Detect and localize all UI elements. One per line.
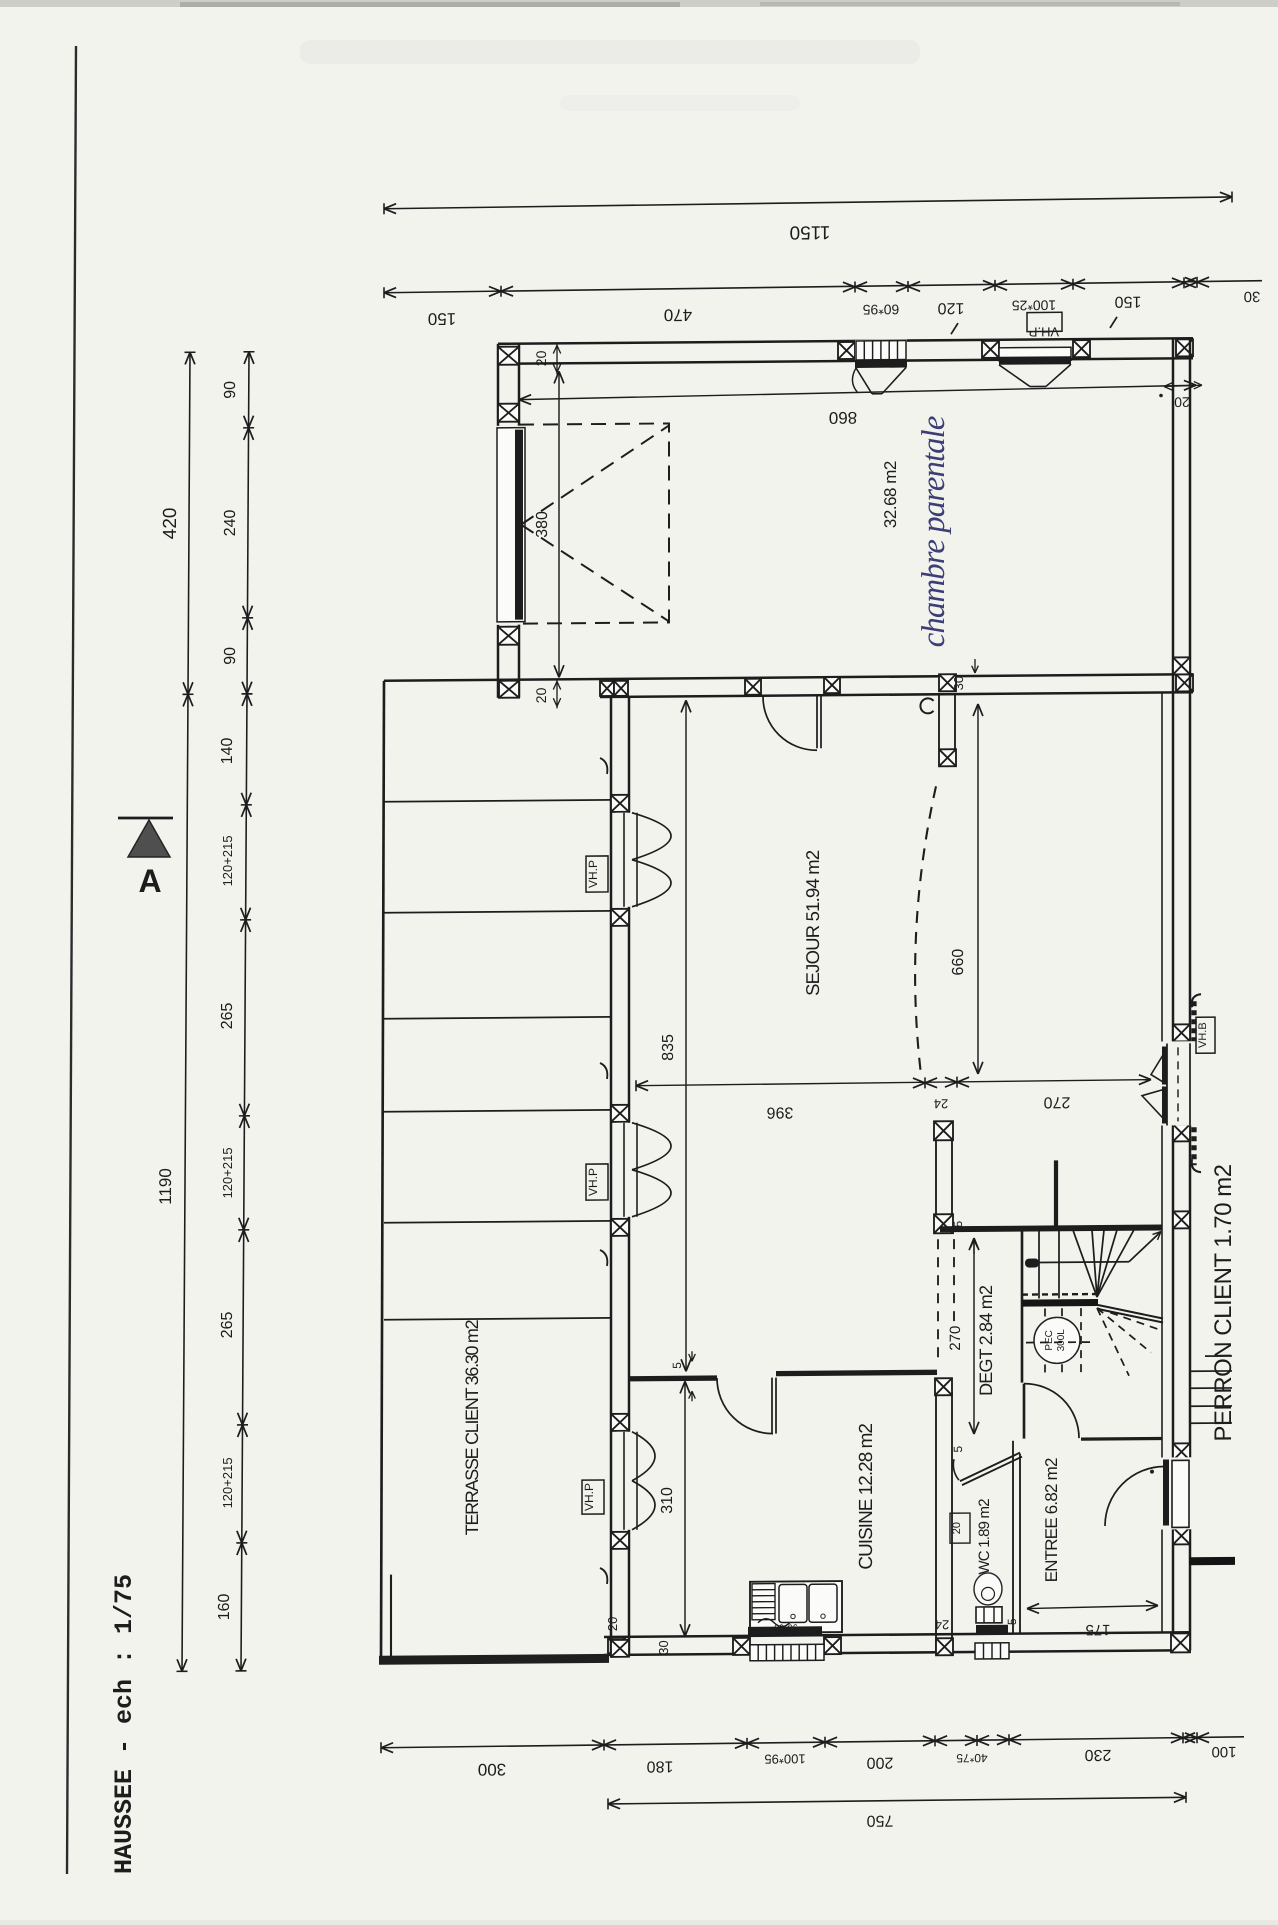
svg-text:VH.P: VH.P	[586, 1168, 600, 1196]
svg-text:265: 265	[219, 1002, 236, 1029]
svg-text:40*75: 40*75	[956, 1751, 988, 1765]
svg-text:660: 660	[950, 949, 967, 976]
svg-text:30: 30	[951, 676, 966, 691]
svg-text:20: 20	[533, 687, 549, 703]
svg-text:PERRON CLIENT 1.70 m2: PERRON CLIENT 1.70 m2	[1210, 1164, 1237, 1442]
svg-text:120+215: 120+215	[220, 1457, 235, 1508]
svg-text:90: 90	[222, 381, 239, 399]
svg-text:chambre parentale: chambre parentale	[916, 416, 952, 647]
svg-text:470: 470	[664, 305, 692, 324]
svg-text:270: 270	[947, 1326, 964, 1351]
svg-text:860: 860	[829, 408, 857, 427]
svg-text:20: 20	[605, 1617, 620, 1632]
svg-text:A: A	[138, 863, 161, 899]
svg-text:100*95: 100*95	[764, 1751, 805, 1766]
svg-text:160: 160	[216, 1593, 233, 1620]
svg-text:30: 30	[1244, 288, 1261, 305]
svg-text:310: 310	[659, 1487, 676, 1514]
svg-text:140: 140	[219, 737, 236, 764]
svg-text:20: 20	[951, 1522, 963, 1534]
svg-text:24: 24	[934, 1096, 948, 1111]
svg-text:835: 835	[660, 1034, 677, 1061]
svg-text:270: 270	[1044, 1093, 1071, 1110]
svg-text:200: 200	[867, 1754, 894, 1771]
svg-text:300L: 300L	[1056, 1329, 1067, 1352]
svg-text:TERRASSE CLIENT 36.30 m2: TERRASSE CLIENT 36.30 m2	[462, 1319, 482, 1535]
svg-text:120+215: 120+215	[220, 835, 235, 886]
svg-text:60*95: 60*95	[862, 302, 899, 318]
svg-text:SEJOUR 51.94 m2: SEJOUR 51.94 m2	[802, 850, 823, 996]
svg-text:VH.B: VH.B	[1197, 1022, 1209, 1048]
svg-text:24: 24	[935, 1617, 949, 1632]
svg-text:120+215: 120+215	[220, 1147, 235, 1198]
svg-text:1190: 1190	[156, 1168, 175, 1205]
svg-text:100: 100	[1211, 1743, 1236, 1760]
svg-text:20: 20	[1174, 394, 1190, 410]
svg-text:420: 420	[160, 508, 181, 540]
svg-text:VH.P: VH.P	[586, 860, 600, 888]
svg-text:5: 5	[951, 1445, 965, 1452]
svg-text:32.68 m2: 32.68 m2	[881, 461, 900, 528]
svg-text:HAUSSEE - ech : 1/75: HAUSSEE - ech : 1/75	[110, 1574, 139, 1874]
svg-text:230: 230	[1085, 1746, 1112, 1763]
svg-text:5: 5	[1005, 1618, 1019, 1625]
svg-text:180: 180	[647, 1757, 674, 1774]
svg-text:265: 265	[219, 1311, 236, 1338]
svg-text:VH.P: VH.P	[1029, 324, 1059, 339]
svg-text:240: 240	[222, 509, 239, 536]
svg-text:5: 5	[951, 1220, 965, 1227]
svg-text:300: 300	[478, 1760, 506, 1779]
svg-text:WC 1.89 m2: WC 1.89 m2	[976, 1499, 993, 1575]
svg-text:750: 750	[867, 1812, 894, 1829]
svg-text:1150: 1150	[790, 221, 831, 242]
svg-text:100*25: 100*25	[1012, 297, 1057, 313]
svg-text:150: 150	[428, 309, 456, 328]
svg-text:396: 396	[767, 1103, 794, 1120]
svg-text:CUISINE 12.28 m2: CUISINE 12.28 m2	[856, 1424, 877, 1570]
svg-text:30: 30	[656, 1640, 671, 1655]
svg-text:90: 90	[222, 647, 239, 665]
svg-text:380: 380	[534, 511, 551, 538]
svg-text:DEGT 2.84 m2: DEGT 2.84 m2	[976, 1285, 996, 1396]
svg-text:20: 20	[533, 350, 549, 366]
svg-text:PEC: PEC	[1044, 1330, 1055, 1351]
svg-text:VH.P: VH.P	[582, 1483, 596, 1511]
svg-text:5: 5	[670, 1362, 684, 1369]
svg-text:175: 175	[1085, 1621, 1110, 1638]
svg-text:ENTREE 6.82 m2: ENTREE 6.82 m2	[1042, 1458, 1061, 1582]
svg-text:120: 120	[938, 299, 965, 316]
svg-text:150: 150	[1115, 293, 1142, 310]
